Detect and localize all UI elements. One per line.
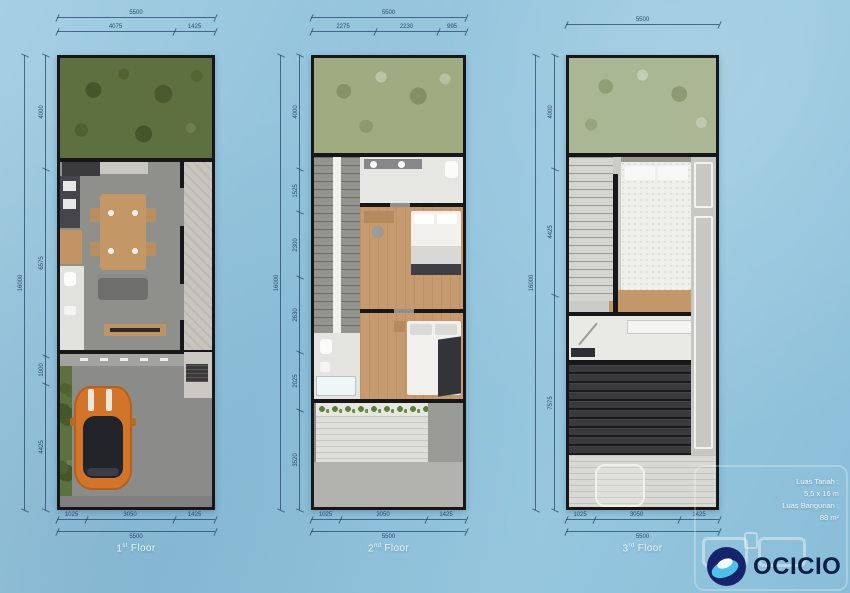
plate [108,210,114,216]
road-band [60,496,212,507]
desk [364,211,394,223]
ocicio-logo: OCICIO [707,547,841,586]
dim-top-total-1: 5500 [57,17,215,23]
pillow [437,214,457,224]
roof-garden [569,58,716,153]
nightstand [394,321,405,332]
dining-table [100,194,146,270]
throw-blanket [438,336,461,396]
wall [180,226,184,284]
chair [146,208,156,222]
pillow [658,166,688,180]
dim-bottom-total-1: 5500 [57,531,215,537]
toilet [64,272,76,286]
dim-bottom-segments-2: 1025 3050 1425 [311,519,466,525]
info-luas-tanah-value: 5,5 x 16 m [715,488,839,500]
dim-top-segments-1: 4075 1425 [57,31,215,37]
floorplan-1 [57,55,215,510]
dim-bottom-segments-1: 1025 3050 1425 [57,519,215,525]
info-luas-bangunan-label: Luas Bangunan : [715,500,839,512]
pillow [625,166,655,180]
floor-label-2: 2ndFloor [311,543,466,554]
car-rear-window [87,468,119,476]
sink [64,306,76,315]
kitchen-counter-light [100,162,148,174]
dim-left-segments-2: 4000 1525 2300 2630 2025 3520 [299,55,305,510]
plate [132,248,138,254]
roof-slats [569,363,691,455]
floorplan-3 [566,55,719,510]
wood-floor-strip [609,290,697,312]
info-luas-bangunan-value: 88 m² [715,512,839,524]
kitchen-counter [62,162,100,176]
info-text: Luas Tanah : 5,5 x 16 m Luas Bangunan : … [715,476,839,524]
chair [90,208,100,222]
step-markers [80,358,88,361]
bed [621,162,691,290]
wall [180,162,184,188]
skylight [595,464,645,507]
stairs [569,157,613,301]
shower [316,376,356,396]
toilet [445,161,458,178]
dim-bottom-total-2: 5500 [311,531,466,537]
appliance [63,181,76,191]
dim-left-segments-3: 4000 4425 7575 [554,55,560,510]
dim-left-total-1: 16000 [24,55,30,510]
plate [132,210,138,216]
chair [146,242,156,256]
chair [372,226,384,238]
dim-left-total-3: 16000 [535,55,541,510]
floor-label-1: 1stFloor [57,543,215,554]
sofa [98,274,148,300]
balcony-side [428,403,463,462]
dim-left-segments-1: 4000 6575 1000 4425 [45,55,51,510]
throw-blanket [411,264,461,275]
cabinet [60,230,82,264]
tv [110,328,160,332]
dim-top-segments-2: 2275 2230 995 [311,31,466,37]
car-mirror [70,418,75,426]
ocicio-globe-icon [707,547,746,586]
car [74,386,132,490]
dim-left-total-2: 16000 [280,55,286,510]
sink [398,161,405,168]
window [694,162,713,208]
wall [613,174,618,312]
floor-plan-poster: 5500 4075 1425 16000 4000 6575 1000 4425… [0,0,850,593]
wall [180,320,184,352]
dim-top-total-3: 5500 [566,24,719,30]
floorplan-2 [311,55,466,510]
planter-row [316,403,428,416]
roof-garden [314,58,463,153]
grass-strip [60,366,72,507]
balcony-deck [316,416,428,462]
sink [370,161,377,168]
mat [571,348,595,357]
ocicio-logo-text: OCICIO [753,553,841,581]
pillow [435,324,457,335]
side-path [184,162,212,352]
dim-top-total-2: 5500 [311,17,466,23]
sink [320,362,330,372]
toilet [320,339,332,354]
window [694,216,713,449]
info-luas-tanah-label: Luas Tanah : [715,476,839,488]
garden [60,58,212,158]
door-mat [186,364,208,382]
appliance [63,199,76,209]
lower-roof [314,462,463,507]
pillow [410,324,432,335]
chair [90,242,100,256]
stair-railing [333,157,341,333]
pillow [414,214,434,224]
car-mirror [131,418,136,426]
plate [108,248,114,254]
